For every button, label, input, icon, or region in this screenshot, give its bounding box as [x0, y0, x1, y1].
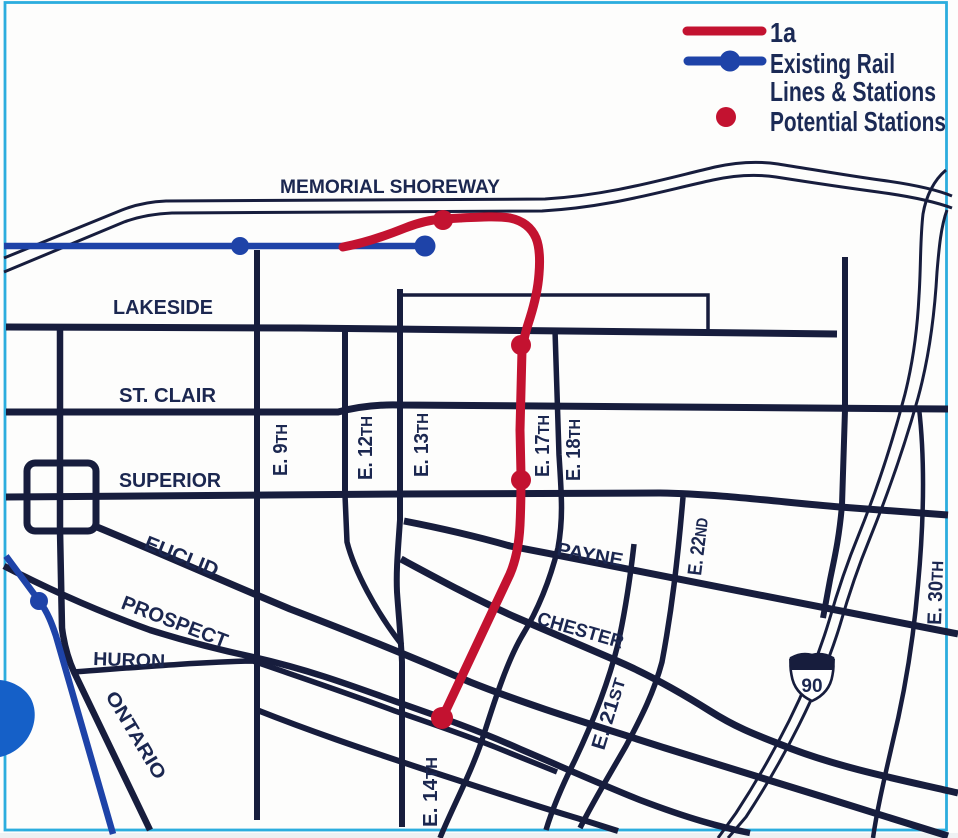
svg-text:90: 90	[801, 676, 822, 697]
svg-text:E. 14TH: E. 14TH	[420, 757, 442, 827]
svg-text:E. 18TH: E. 18TH	[563, 419, 585, 481]
svg-text:MEMORIAL SHOREWAY: MEMORIAL SHOREWAY	[280, 176, 500, 198]
svg-text:HURON: HURON	[93, 649, 166, 672]
svg-text:Existing Rail: Existing Rail	[770, 48, 895, 79]
svg-text:SUPERIOR: SUPERIOR	[119, 470, 222, 492]
svg-text:Lines & Stations: Lines & Stations	[770, 76, 936, 107]
svg-text:E. 13TH: E. 13TH	[411, 413, 433, 477]
svg-text:ST. CLAIR: ST. CLAIR	[119, 385, 217, 407]
svg-text:E. 17TH: E. 17TH	[532, 415, 554, 477]
svg-text:1a: 1a	[770, 17, 796, 48]
svg-text:LAKESIDE: LAKESIDE	[113, 297, 213, 319]
svg-text:E. 12TH: E. 12TH	[355, 416, 377, 480]
svg-text:E. 9TH: E. 9TH	[270, 424, 292, 476]
svg-text:Potential Stations: Potential Stations	[770, 106, 946, 137]
